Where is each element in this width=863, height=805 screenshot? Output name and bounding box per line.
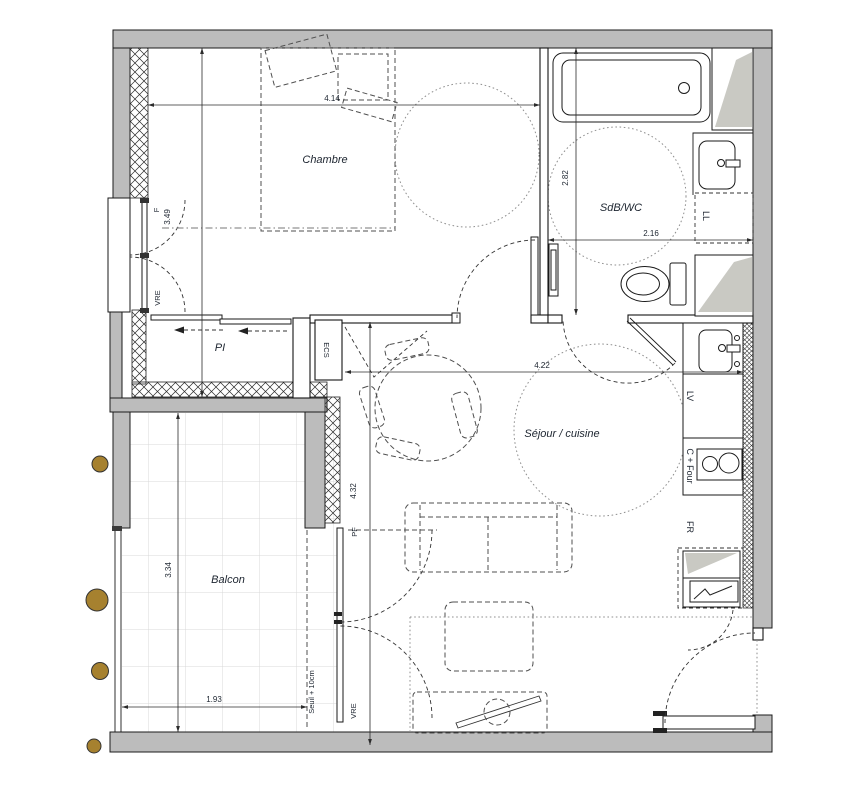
coffee-table [445, 602, 533, 671]
wall-balcony-north [110, 398, 327, 412]
floor-plan-page: Chambre SdB/WC Séjour / cuisine Balcon P… [0, 0, 863, 800]
dim-sejour-width: 4.22 [534, 361, 550, 370]
dining-chair-east [450, 390, 478, 439]
entry-door-leaf [663, 716, 755, 729]
wall-west-upper [113, 48, 130, 198]
label-water-heater: ECS [322, 342, 331, 357]
planter-marker-1 [92, 456, 108, 472]
label-window-f: F [152, 207, 161, 212]
planter-markers [86, 456, 109, 753]
wall-balcony-east [305, 412, 325, 528]
planter-marker-3 [92, 663, 109, 680]
insulation-balcony-east [325, 397, 340, 523]
ecs-door-swing [345, 327, 427, 377]
entry-zone-dotted-lines [410, 617, 757, 732]
entry-door-hinge-bottom [653, 728, 667, 733]
toilet-bowl-inner [627, 273, 660, 295]
pi-closet [151, 315, 291, 335]
bed [261, 48, 395, 231]
window-hinge-bottom [140, 308, 149, 313]
sdb-door-leaf [627, 318, 676, 365]
washbasin-tap-handle [726, 160, 740, 167]
label-cooktop-oven: C + Four [685, 448, 695, 483]
room-label-placard: PI [215, 342, 225, 354]
wall-chambre-sdb [540, 48, 548, 318]
wall-north [113, 30, 772, 48]
wall-west-mid [110, 310, 122, 400]
wall-sdb-south-west [548, 315, 562, 323]
dining-chair-south [375, 436, 422, 462]
dining-table [375, 355, 481, 461]
window-handle-mid [140, 253, 149, 258]
room-label-balcon: Balcon [211, 574, 245, 586]
kitchen-tap-handle [727, 345, 740, 352]
insulation-kitchen-east [743, 323, 753, 608]
french-window-swing-top [340, 530, 432, 622]
sliding-panel-2 [220, 319, 291, 324]
wall-south [110, 732, 772, 752]
wall-hall-pier [293, 318, 310, 398]
insulation-west-upper [130, 48, 148, 198]
cooktop-burner-small [703, 457, 718, 472]
label-dishwasher: LV [685, 391, 695, 401]
entry-jamb-notch [753, 628, 763, 640]
cooktop-burner-large [719, 453, 739, 473]
chambre-door-jamb [452, 313, 460, 323]
turning-circle-sdb [548, 127, 686, 265]
bathroom-fixtures [549, 48, 753, 316]
dim-balcon-depth: 3.34 [164, 562, 173, 578]
bathtub-drain [679, 83, 690, 94]
panel-door-swing [688, 610, 733, 650]
kitchen-sink-screw-1 [735, 336, 740, 341]
electrical-panel-meter [690, 581, 738, 602]
sliding-panel-1 [151, 315, 222, 320]
room-label-chambre: Chambre [302, 154, 347, 166]
window-f [108, 198, 185, 313]
entry-zone [410, 617, 757, 732]
wall-balcony-west [113, 412, 130, 528]
label-washer: LL [701, 211, 711, 221]
dim-sdb-depth: 2.82 [561, 170, 570, 186]
planter-marker-2 [86, 589, 108, 611]
floor-plan-drawing: Chambre SdB/WC Séjour / cuisine Balcon P… [0, 0, 863, 800]
tv-screen [456, 696, 541, 728]
dining-chair-north [384, 337, 430, 362]
dim-sejour-depth: 4.32 [349, 483, 358, 499]
toilet-tank [670, 263, 686, 305]
french-window-handle-1 [334, 612, 342, 616]
slide-arrow-2-head [238, 328, 248, 335]
wall-east-stub [753, 715, 772, 732]
room-label-sejour: Séjour / cuisine [524, 428, 599, 440]
slide-arrow-1-head [174, 327, 184, 334]
dim-chambre-width: 4.14 [324, 94, 340, 103]
kitchen-sink-screw-2 [735, 362, 740, 367]
label-pf: PF [350, 527, 359, 537]
french-window-frame [337, 528, 343, 722]
entry-door-swing [665, 633, 755, 723]
label-vre-window: VRE [153, 290, 162, 305]
dining-chair-west [358, 385, 386, 430]
window-sill-box [108, 198, 130, 312]
label-threshold: Seuil + 10cm [307, 670, 316, 714]
wall-east [753, 48, 772, 628]
label-fridge: FR [685, 521, 695, 533]
dim-chambre-depth: 3.49 [163, 209, 172, 225]
tv-stand [413, 692, 547, 733]
chambre-door-swing [457, 240, 535, 318]
wall-chambre-south-jamb [531, 315, 548, 323]
railing-west [115, 528, 121, 732]
washbasin-tap [718, 160, 725, 167]
railing-cap [112, 526, 122, 531]
dim-sdb-width: 2.16 [643, 229, 659, 238]
dim-balcon-width: 1.93 [206, 695, 222, 704]
balcony-rail [112, 526, 122, 732]
sofa-cushion-lines [420, 505, 557, 570]
window-hinge-top [140, 198, 149, 203]
room-label-sdb: SdB/WC [600, 202, 642, 214]
kitchen-tap [719, 345, 726, 352]
chambre-door-leaf [531, 237, 538, 315]
towel-radiator-inner [551, 250, 556, 290]
planter-marker-4 [87, 739, 101, 753]
insulation-west-mid [132, 310, 146, 384]
label-vre-balcony: VRE [349, 703, 358, 718]
